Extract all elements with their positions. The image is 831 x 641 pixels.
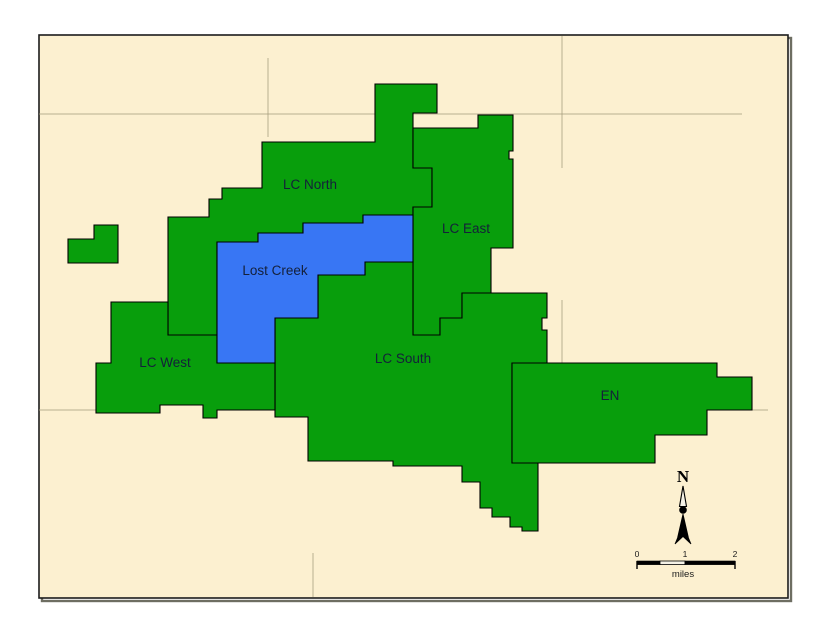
scale-bar-segment-black	[637, 561, 660, 565]
north-arrow-letter: N	[677, 467, 690, 486]
scale-bar-segment-white	[660, 561, 685, 565]
area-label-lc-west: LC West	[139, 355, 191, 370]
area-label-lc-north: LC North	[283, 177, 337, 192]
area-label-lost-creek: Lost Creek	[242, 263, 308, 278]
area-label-lc-east: LC East	[442, 221, 490, 236]
scale-bar-segment-black	[685, 561, 735, 565]
area-label-lc-south: LC South	[375, 351, 431, 366]
figure-canvas: LC NorthLC EastLC SouthLC WestENLost Cre…	[0, 0, 831, 641]
scale-bar-unit-label: miles	[672, 569, 694, 580]
north-arrow-hub	[680, 507, 687, 514]
scale-bar-tick-label: 1	[683, 549, 688, 559]
scale-bar-tick-label: 2	[733, 549, 738, 559]
scale-bar-tick-label: 0	[635, 549, 640, 559]
project-areas-map: LC NorthLC EastLC SouthLC WestENLost Cre…	[0, 0, 831, 641]
area-label-en: EN	[601, 388, 620, 403]
